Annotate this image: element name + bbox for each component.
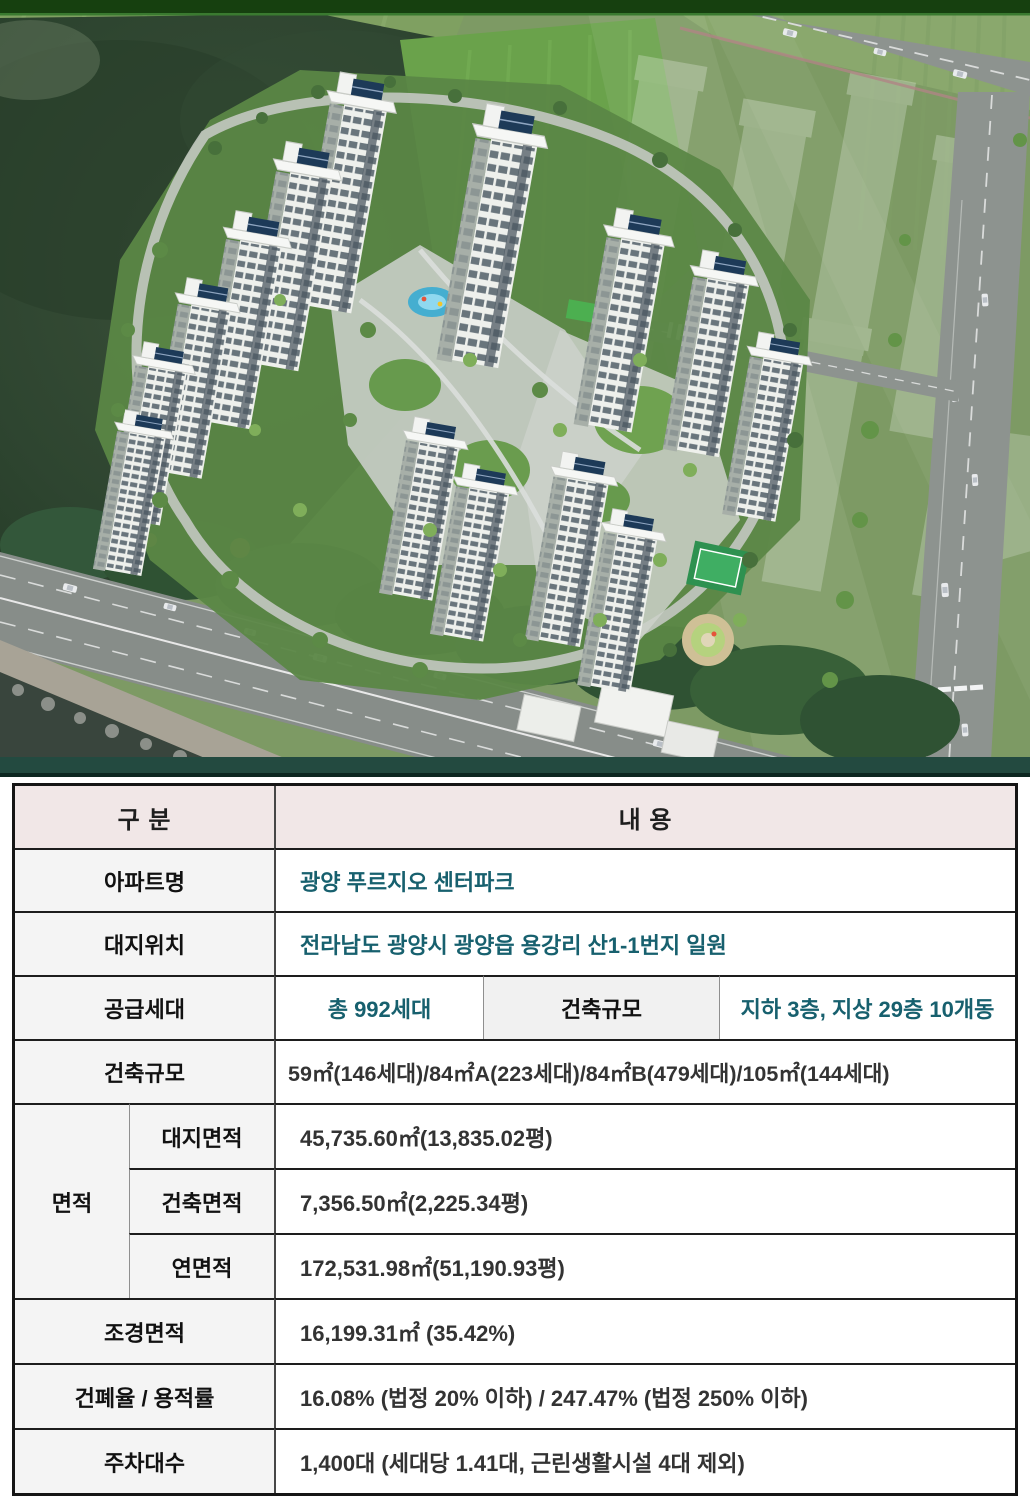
row-ratios-value: 16.08% (법정 20% 이하) / 247.47% (법정 250% 이하…: [274, 1363, 1015, 1428]
row-location-value: 전라남도 광양시 광양읍 용강리 산1-1번지 일원: [274, 911, 1015, 975]
apartment-spec-table: 구 분 내 용 아파트명 광양 푸르지오 센터파크 대지위치 전라남도 광양시 …: [12, 783, 1018, 1496]
row-supply-total: 총 992세대: [274, 975, 483, 1039]
row-apt-name-label: 아파트명: [15, 848, 274, 911]
row-gross-floor-area-value: 172,531.98㎡(51,190.93평): [274, 1233, 1015, 1298]
row-ratios-label: 건폐율 / 용적률: [15, 1363, 274, 1428]
bottom-teal-strip: [0, 757, 1030, 774]
table-header-category: 구 분: [15, 786, 274, 848]
row-supply-label: 공급세대: [15, 975, 274, 1039]
row-landscape-value: 16,199.31㎡ (35.42%): [274, 1298, 1015, 1363]
row-unit-mix-label: 건축규모: [15, 1039, 274, 1103]
row-apt-name-value: 광양 푸르지오 센터파크: [274, 848, 1015, 911]
row-site-area-label: 대지면적: [129, 1103, 274, 1168]
spec-table-section: 구 분 내 용 아파트명 광양 푸르지오 센터파크 대지위치 전라남도 광양시 …: [12, 783, 1018, 1496]
row-supply-scale-value: 지하 3층, 지상 29층 10개동: [719, 975, 1015, 1039]
complex-aerial-rendering: [0, 0, 1030, 777]
row-supply-scale-label: 건축규모: [483, 975, 719, 1039]
row-unit-mix-value: 59㎡(146세대)/84㎡A(223세대)/84㎡B(479세대)/105㎡(…: [274, 1039, 1015, 1103]
top-green-strip: [0, 0, 1030, 13]
row-parking-label: 주차대수: [15, 1428, 274, 1493]
row-gross-floor-area-label: 연면적: [129, 1233, 274, 1298]
row-site-area-value: 45,735.60㎡(13,835.02평): [274, 1103, 1015, 1168]
table-header-content: 내 용: [274, 786, 1015, 848]
row-parking-value: 1,400대 (세대당 1.41대, 근린생활시설 4대 제외): [274, 1428, 1015, 1493]
playground-circle: [682, 614, 734, 666]
row-building-area-value: 7,356.50㎡(2,225.34평): [274, 1168, 1015, 1233]
row-building-area-label: 건축면적: [129, 1168, 274, 1233]
row-area-group-label: 면적: [15, 1103, 129, 1298]
row-location-label: 대지위치: [15, 911, 274, 975]
row-landscape-label: 조경면적: [15, 1298, 274, 1363]
